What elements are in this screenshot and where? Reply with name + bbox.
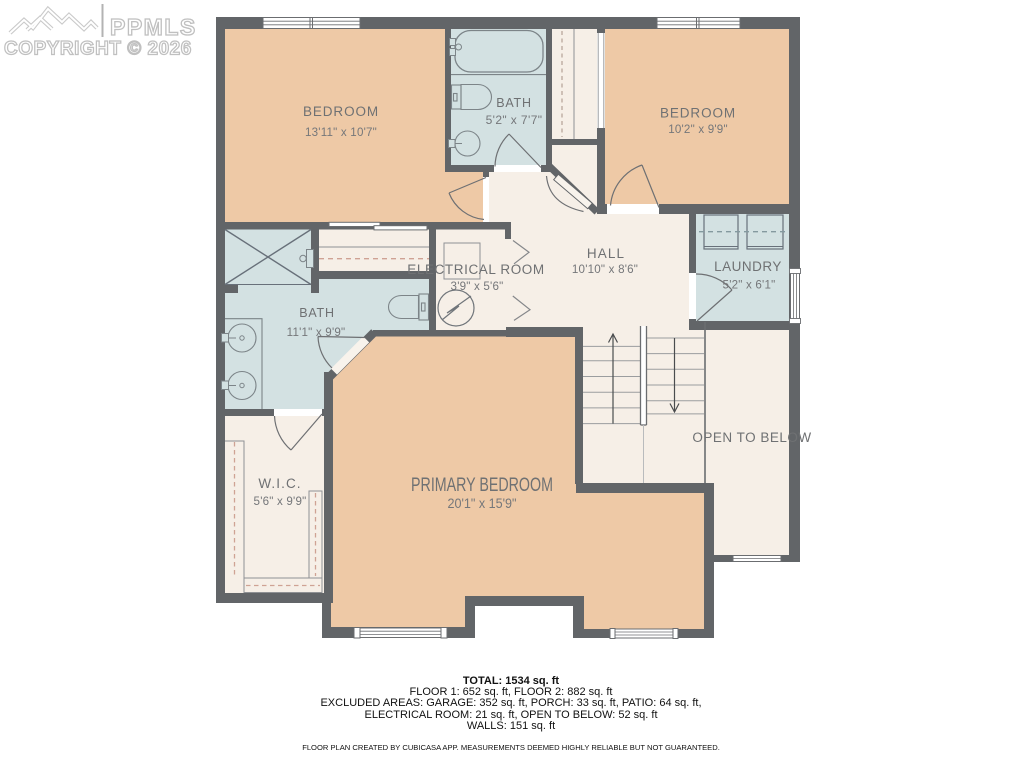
svg-text:5'6" x 9'9": 5'6" x 9'9" <box>254 495 307 508</box>
svg-text:20'1" x 15'9": 20'1" x 15'9" <box>447 495 516 511</box>
svg-text:5'2" x 6'1": 5'2" x 6'1" <box>723 279 776 292</box>
svg-text:5'2" x 7'7": 5'2" x 7'7" <box>486 113 543 127</box>
svg-text:PRIMARY BEDROOM: PRIMARY BEDROOM <box>411 474 553 495</box>
svg-text:BEDROOM: BEDROOM <box>303 104 379 119</box>
svg-text:13'11" x 10'7": 13'11" x 10'7" <box>305 126 377 139</box>
svg-text:W.I.C.: W.I.C. <box>258 476 301 491</box>
svg-text:OPEN TO BELOW: OPEN TO BELOW <box>692 430 811 445</box>
svg-text:11'1" x 9'9": 11'1" x 9'9" <box>287 326 346 339</box>
svg-text:10'10" x 8'6": 10'10" x 8'6" <box>572 263 638 276</box>
svg-text:HALL: HALL <box>587 246 625 261</box>
svg-text:10'2" x 9'9": 10'2" x 9'9" <box>668 123 728 136</box>
svg-text:PPMLS: PPMLS <box>110 14 197 40</box>
svg-text:3'9" x 5'6": 3'9" x 5'6" <box>451 280 504 293</box>
svg-text:BATH: BATH <box>299 306 335 320</box>
svg-text:BEDROOM: BEDROOM <box>660 106 736 121</box>
svg-text:LAUNDRY: LAUNDRY <box>714 259 782 274</box>
svg-text:BATH: BATH <box>496 96 532 110</box>
svg-text:COPYRIGHT © 2026: COPYRIGHT © 2026 <box>4 39 192 60</box>
svg-text:ELECTRICAL ROOM: ELECTRICAL ROOM <box>407 262 545 277</box>
